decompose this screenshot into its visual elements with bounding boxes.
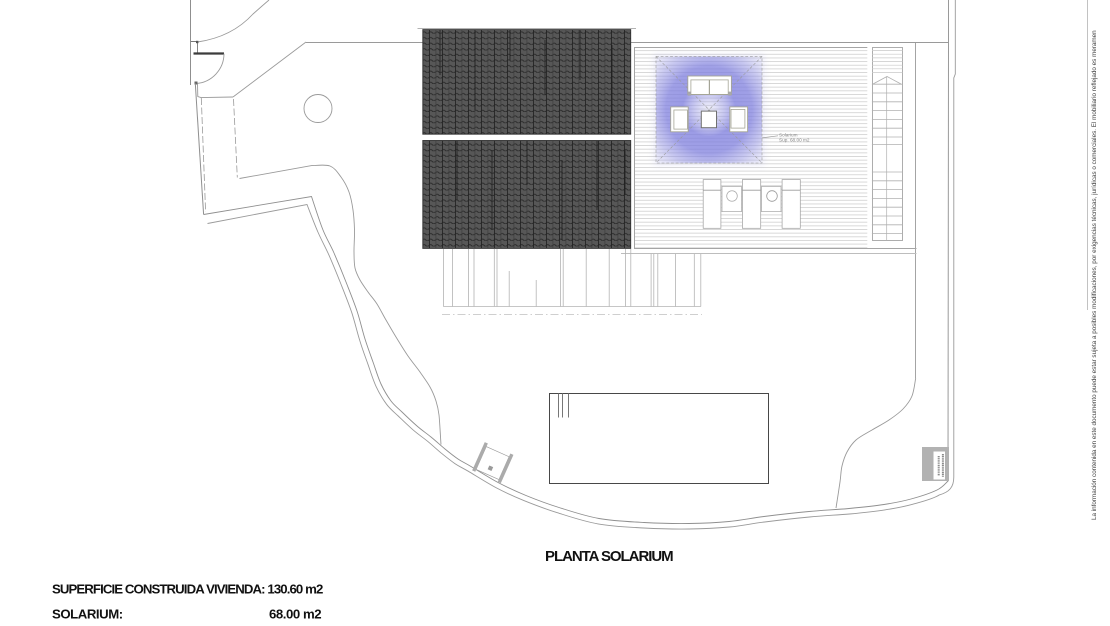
svg-text:PLANTA SOLARIUM: PLANTA SOLARIUM [545,548,673,565]
svg-text:68.00 m2: 68.00 m2 [269,607,321,622]
svg-text:Sup. 68.00 m2: Sup. 68.00 m2 [779,138,810,143]
svg-text:La información contenida en es: La información contenida en este documen… [1091,30,1098,520]
svg-text:SOLARIUM:: SOLARIUM: [52,607,123,622]
svg-text:SUPERFICIE CONSTRUIDA VIVIENDA: SUPERFICIE CONSTRUIDA VIVIENDA: 130.60 m… [52,582,323,597]
